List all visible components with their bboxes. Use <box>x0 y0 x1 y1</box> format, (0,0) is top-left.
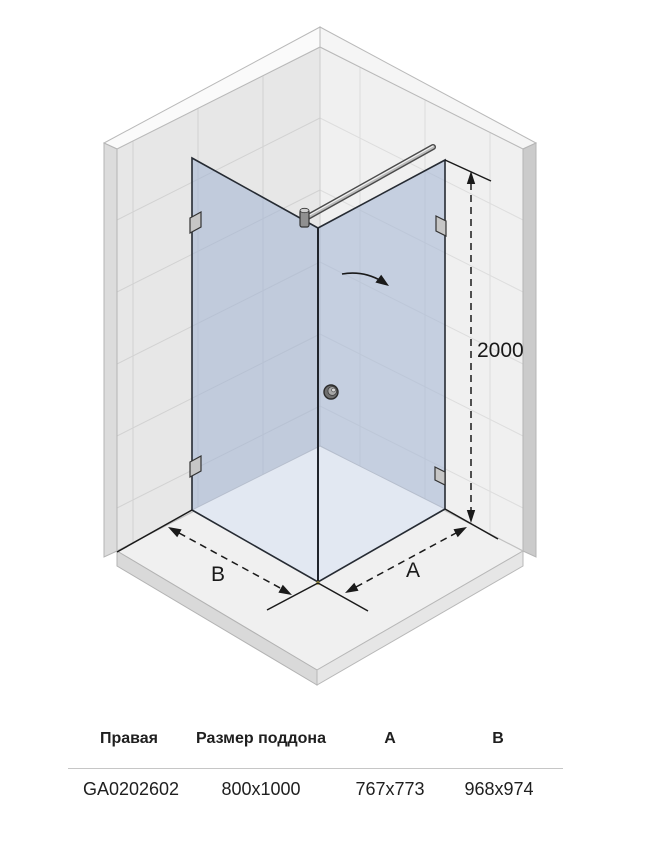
spec-value-b: 968x974 <box>464 779 533 800</box>
wall-edge-strip-right <box>523 143 536 557</box>
spec-value-tray-size: 800x1000 <box>221 779 300 800</box>
shower-enclosure-diagram: 2000 B A <box>0 0 650 710</box>
wall-edge-strip-left <box>104 143 117 557</box>
spec-header-tray-size: Размер поддона <box>196 730 326 748</box>
spec-header-orientation: Правая <box>100 730 158 748</box>
spec-header-a: A <box>384 730 396 748</box>
spec-value-model-code: GA0202602 <box>83 779 179 800</box>
side-a-dimension-label: A <box>406 559 420 582</box>
height-dimension-label: 2000 <box>477 339 524 362</box>
side-b-dimension-label: B <box>211 563 225 586</box>
spec-table-divider <box>68 768 563 769</box>
spec-header-b: B <box>492 730 504 748</box>
door-knob <box>324 385 338 399</box>
spec-value-a: 767x773 <box>355 779 424 800</box>
product-drawing-page: 2000 B A Правая Размер поддона A B GA020… <box>0 0 650 850</box>
bar-wall-fitting <box>300 208 309 227</box>
